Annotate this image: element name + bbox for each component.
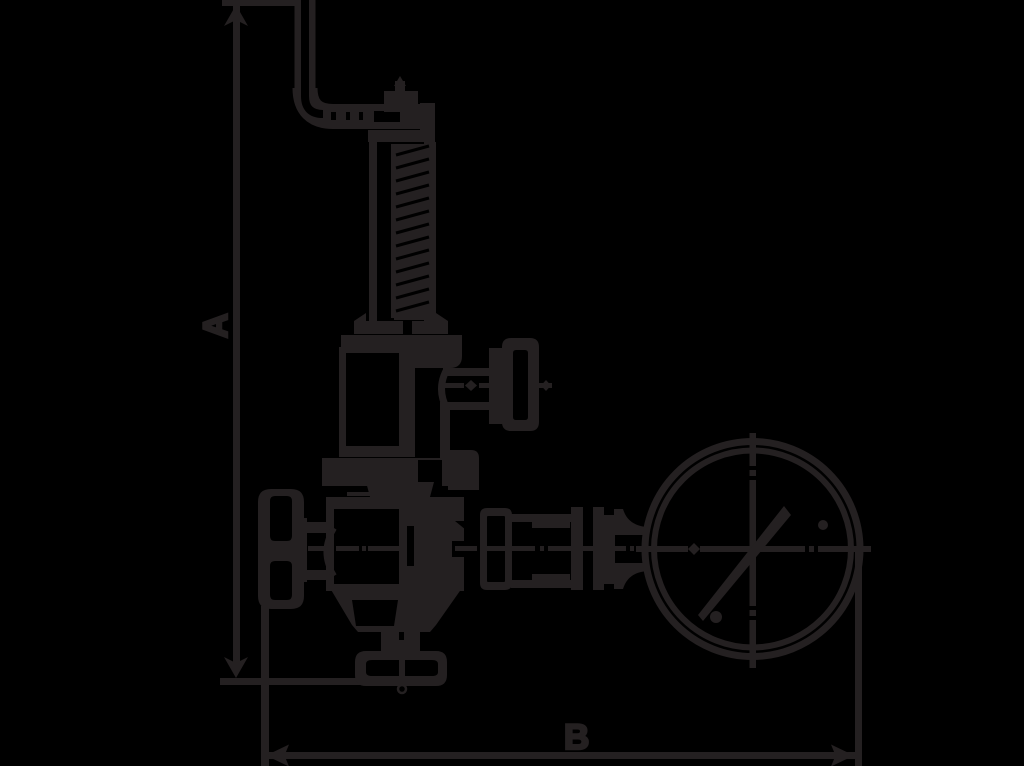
svg-text:B: B [564,718,589,757]
svg-text:A: A [197,313,235,338]
